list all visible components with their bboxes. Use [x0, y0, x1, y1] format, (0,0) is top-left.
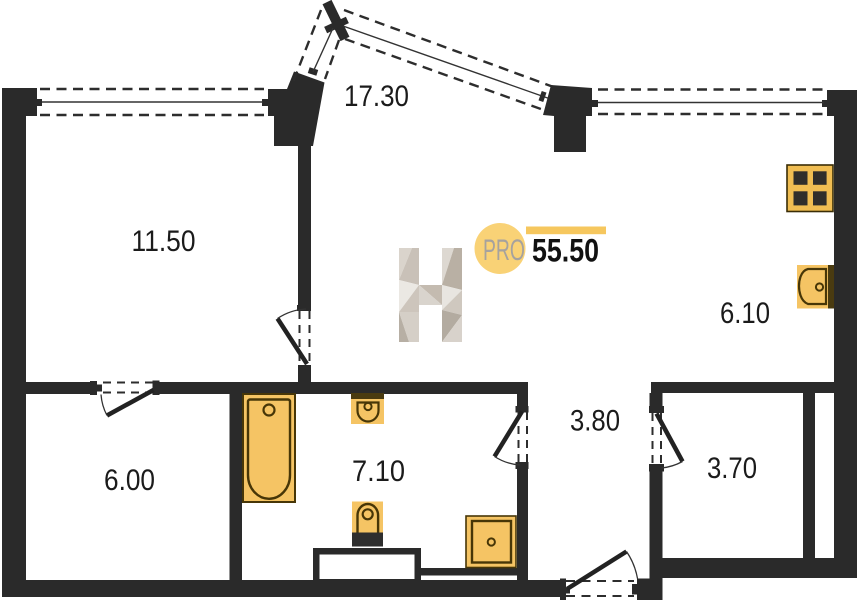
svg-text:55.50: 55.50 [532, 233, 599, 269]
svg-text:6.00: 6.00 [104, 464, 155, 497]
svg-text:3.70: 3.70 [707, 452, 757, 485]
svg-text:6.10: 6.10 [720, 297, 770, 330]
svg-text:17.30: 17.30 [344, 80, 409, 113]
svg-text:11.50: 11.50 [132, 225, 196, 258]
svg-text:7.10: 7.10 [352, 455, 405, 488]
svg-text:3.80: 3.80 [570, 405, 620, 438]
svg-text:PRO: PRO [483, 234, 525, 267]
